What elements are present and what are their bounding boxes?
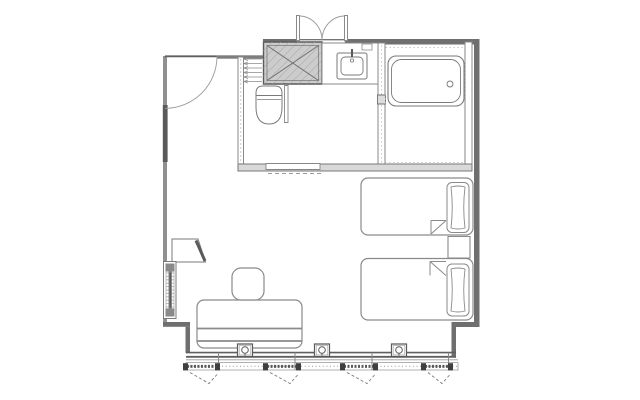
- left-wall-jog-h: [163, 322, 190, 327]
- entry-door-leaf-left: [297, 16, 300, 41]
- sofa: [197, 300, 302, 348]
- floor-outlet: [238, 344, 253, 357]
- curtain-swag: [190, 373, 217, 384]
- bed-2: [361, 259, 473, 321]
- closet-door: [165, 56, 217, 108]
- curtain-end-block: [373, 363, 378, 370]
- closet-door-swing: [165, 56, 217, 108]
- floor-outlet: [315, 344, 330, 357]
- curtain-end-block: [183, 363, 188, 370]
- entry-door-swing-left: [300, 16, 323, 40]
- curtain-end-block: [421, 363, 426, 370]
- ottoman: [232, 268, 264, 300]
- floor-outlet: [392, 344, 407, 357]
- curtain-swag: [270, 373, 298, 384]
- right-wall-step-v: [452, 327, 457, 356]
- toilet-room-wall: [238, 57, 244, 170]
- bathroom: [238, 42, 472, 174]
- bedroom: [164, 178, 474, 348]
- curtain-end-block: [448, 363, 453, 370]
- tv-corner-unit: [172, 239, 206, 262]
- wall-panel-core: [169, 272, 172, 308]
- bed-1: [361, 178, 473, 235]
- curtain-end-block: [215, 363, 220, 370]
- curtain-end-block: [340, 363, 345, 370]
- bathroom-bottom-wall: [238, 164, 472, 174]
- bathtub: [388, 56, 464, 106]
- louver-lines: [244, 57, 262, 83]
- entry-double-door: [297, 16, 348, 41]
- pipe-shaft: [264, 42, 323, 84]
- right-wall-step-h: [452, 322, 480, 327]
- tub-room-door-jamb: [378, 95, 386, 104]
- floor-plan: [0, 0, 640, 400]
- bathtub-rim: [388, 56, 464, 106]
- floor-plan-drawing: [0, 0, 640, 400]
- entry-door-leaf-right: [345, 16, 348, 41]
- right-wall: [474, 39, 480, 326]
- curtain-end-block: [296, 363, 301, 370]
- wall-panel-cap-top: [166, 264, 174, 271]
- left-wall-pier: [163, 105, 168, 162]
- left-wall-jog-v: [186, 327, 191, 353]
- wall-panel-cap-bottom: [166, 309, 174, 316]
- wall-junction-box: [362, 44, 372, 50]
- tub-room-right-wall: [465, 42, 472, 166]
- sliding-door-panel: [266, 164, 320, 170]
- curtain-end-block: [263, 363, 268, 370]
- curtain-swag: [428, 373, 450, 384]
- wall-panel: [164, 262, 177, 319]
- curtain-swag: [347, 373, 375, 384]
- toilet: [256, 86, 282, 124]
- toilet-bowl: [256, 86, 282, 124]
- bed-1-outline: [361, 178, 473, 235]
- entry-door-swing-right: [322, 16, 345, 40]
- nightstand: [448, 237, 470, 259]
- toilet-partition: [285, 86, 289, 123]
